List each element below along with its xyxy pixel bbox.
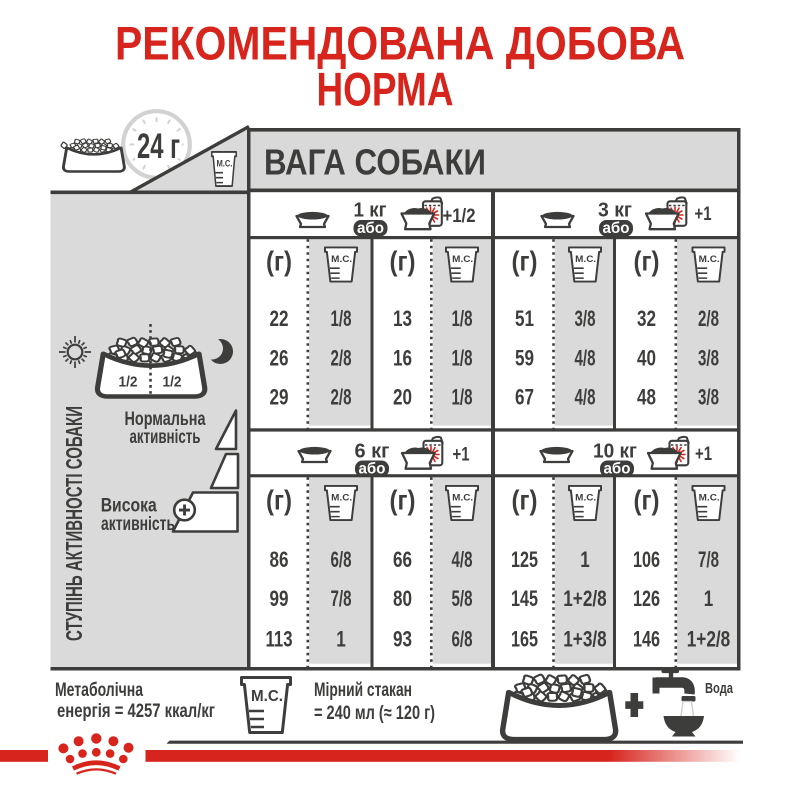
svg-text:або: або: [603, 220, 630, 237]
svg-text:(г): (г): [512, 246, 538, 277]
svg-text:7/8: 7/8: [331, 586, 352, 611]
svg-text:1/8: 1/8: [331, 306, 352, 331]
svg-text:1+2/8: 1+2/8: [687, 627, 731, 652]
svg-text:13: 13: [393, 306, 412, 331]
svg-text:активність: активність: [101, 514, 175, 535]
svg-text:4/8: 4/8: [452, 547, 473, 572]
svg-text:6 кг: 6 кг: [355, 441, 390, 463]
svg-text:59: 59: [515, 346, 534, 371]
svg-text:(г): (г): [390, 246, 416, 277]
svg-text:51: 51: [515, 306, 534, 331]
svg-text:66: 66: [393, 547, 412, 572]
svg-text:93: 93: [393, 627, 412, 652]
svg-text:126: 126: [633, 586, 660, 611]
svg-text:Мірний стакан: Мірний стакан: [314, 679, 412, 701]
svg-text:24 г: 24 г: [137, 127, 180, 166]
svg-text:26: 26: [270, 346, 289, 371]
svg-text:або: або: [357, 220, 384, 237]
svg-text:або: або: [359, 460, 386, 477]
svg-text:6/8: 6/8: [452, 627, 473, 652]
svg-text:2/8: 2/8: [698, 306, 719, 331]
svg-text:7/8: 7/8: [698, 547, 719, 572]
svg-text:або: або: [604, 460, 631, 477]
svg-text:16: 16: [393, 346, 412, 371]
svg-text:48: 48: [637, 385, 656, 410]
svg-text:106: 106: [633, 547, 660, 572]
svg-text:+1: +1: [453, 444, 470, 466]
svg-text:(г): (г): [266, 246, 292, 277]
svg-text:2/8: 2/8: [331, 385, 352, 410]
svg-text:1+3/8: 1+3/8: [563, 627, 607, 652]
svg-text:99: 99: [270, 586, 289, 611]
svg-text:4/8: 4/8: [575, 385, 596, 410]
svg-text:СТУПІНЬ АКТИВНОСТІ СОБАКИ: СТУПІНЬ АКТИВНОСТІ СОБАКИ: [61, 406, 87, 641]
svg-text:+1/2: +1/2: [443, 205, 476, 227]
svg-text:енергія = 4257 ккал/кг: енергія = 4257 ккал/кг: [57, 700, 215, 722]
svg-text:НОРМА: НОРМА: [317, 63, 454, 116]
svg-text:86: 86: [270, 547, 289, 572]
svg-text:29: 29: [270, 385, 289, 410]
svg-text:80: 80: [393, 586, 412, 611]
svg-text:1/2: 1/2: [163, 375, 182, 391]
svg-text:(г): (г): [390, 485, 416, 516]
svg-text:4/8: 4/8: [575, 346, 596, 371]
svg-text:1: 1: [336, 627, 346, 652]
svg-text:1: 1: [704, 586, 714, 611]
svg-text:10 кг: 10 кг: [593, 441, 637, 463]
svg-text:+1: +1: [695, 443, 712, 465]
svg-text:1/8: 1/8: [452, 306, 473, 331]
svg-text:32: 32: [637, 306, 656, 331]
svg-text:ВАГА СОБАКИ: ВАГА СОБАКИ: [264, 142, 486, 183]
svg-text:1: 1: [580, 547, 590, 572]
svg-text:40: 40: [637, 346, 656, 371]
svg-text:3/8: 3/8: [698, 385, 719, 410]
svg-text:(г): (г): [266, 485, 292, 516]
svg-text:= 240 мл (≈ 120 г): = 240 мл (≈ 120 г): [314, 702, 435, 724]
svg-text:1/2: 1/2: [119, 375, 138, 391]
svg-text:(г): (г): [512, 485, 538, 516]
svg-text:165: 165: [511, 627, 538, 652]
svg-text:+1: +1: [695, 203, 712, 225]
svg-text:Метаболічна: Метаболічна: [55, 679, 143, 701]
svg-text:3/8: 3/8: [698, 346, 719, 371]
svg-text:125: 125: [511, 547, 538, 572]
svg-text:1/8: 1/8: [452, 346, 473, 371]
svg-text:(г): (г): [634, 485, 660, 516]
svg-text:3/8: 3/8: [575, 306, 596, 331]
svg-text:20: 20: [393, 385, 412, 410]
svg-text:1+2/8: 1+2/8: [563, 586, 607, 611]
svg-text:(г): (г): [634, 246, 660, 277]
svg-text:6/8: 6/8: [331, 547, 352, 572]
svg-text:1/8: 1/8: [452, 385, 473, 410]
svg-text:22: 22: [270, 306, 289, 331]
svg-text:3 кг: 3 кг: [598, 200, 632, 222]
svg-text:2/8: 2/8: [331, 346, 352, 371]
svg-text:Вода: Вода: [705, 680, 733, 697]
svg-text:67: 67: [515, 385, 534, 410]
svg-text:145: 145: [511, 586, 538, 611]
svg-text:113: 113: [266, 627, 293, 652]
svg-text:активність: активність: [130, 427, 201, 448]
svg-text:146: 146: [633, 627, 660, 652]
svg-text:5/8: 5/8: [452, 586, 473, 611]
svg-text:1 кг: 1 кг: [354, 200, 387, 222]
